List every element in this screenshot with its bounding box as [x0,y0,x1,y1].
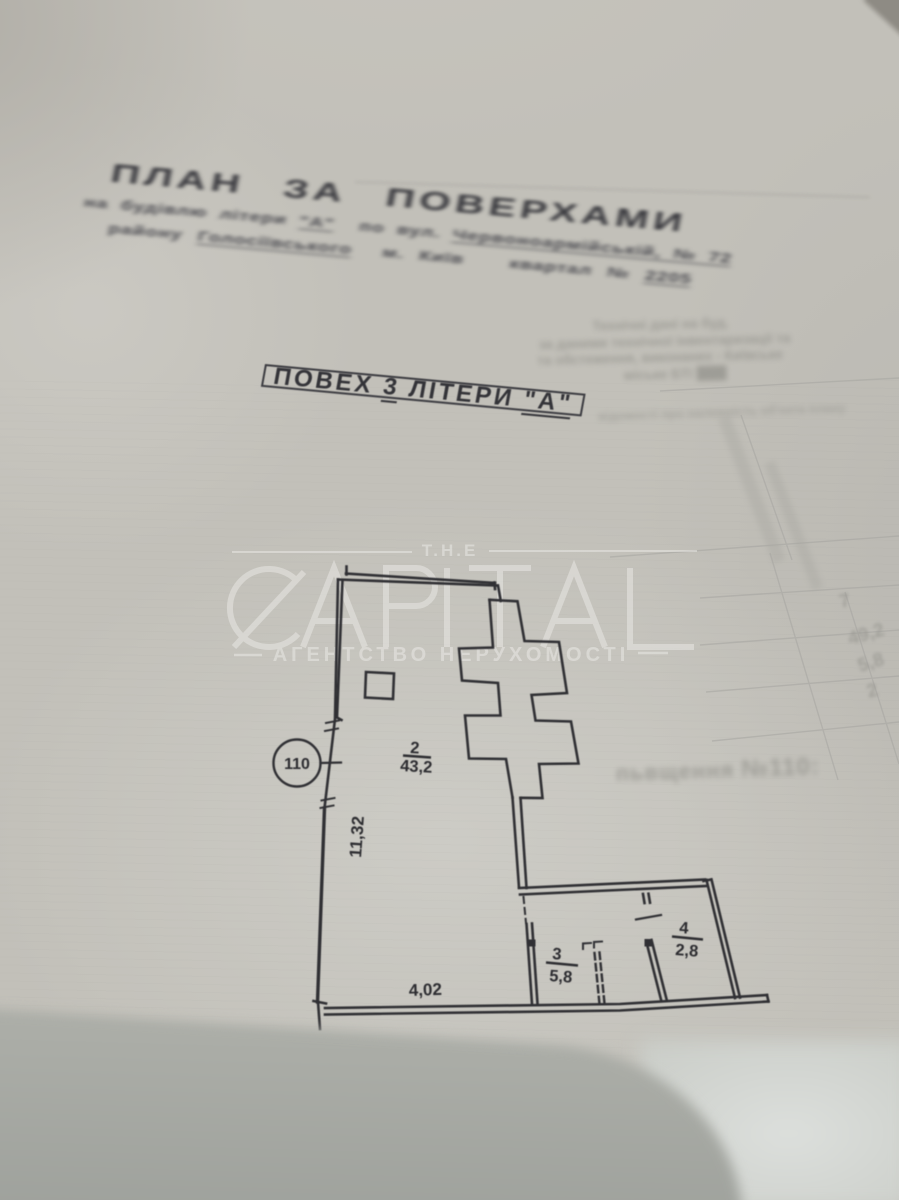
svg-text:43,2: 43,2 [400,757,433,777]
svg-text:11,32: 11,32 [346,815,368,858]
svg-text:2,8: 2,8 [675,941,699,961]
svg-text:4,02: 4,02 [408,980,442,1000]
svg-text:5,8: 5,8 [549,967,573,987]
svg-text:110: 110 [284,756,310,773]
svg-text:2: 2 [410,739,420,757]
svg-text:3: 3 [552,945,562,964]
svg-text:4: 4 [679,919,690,938]
